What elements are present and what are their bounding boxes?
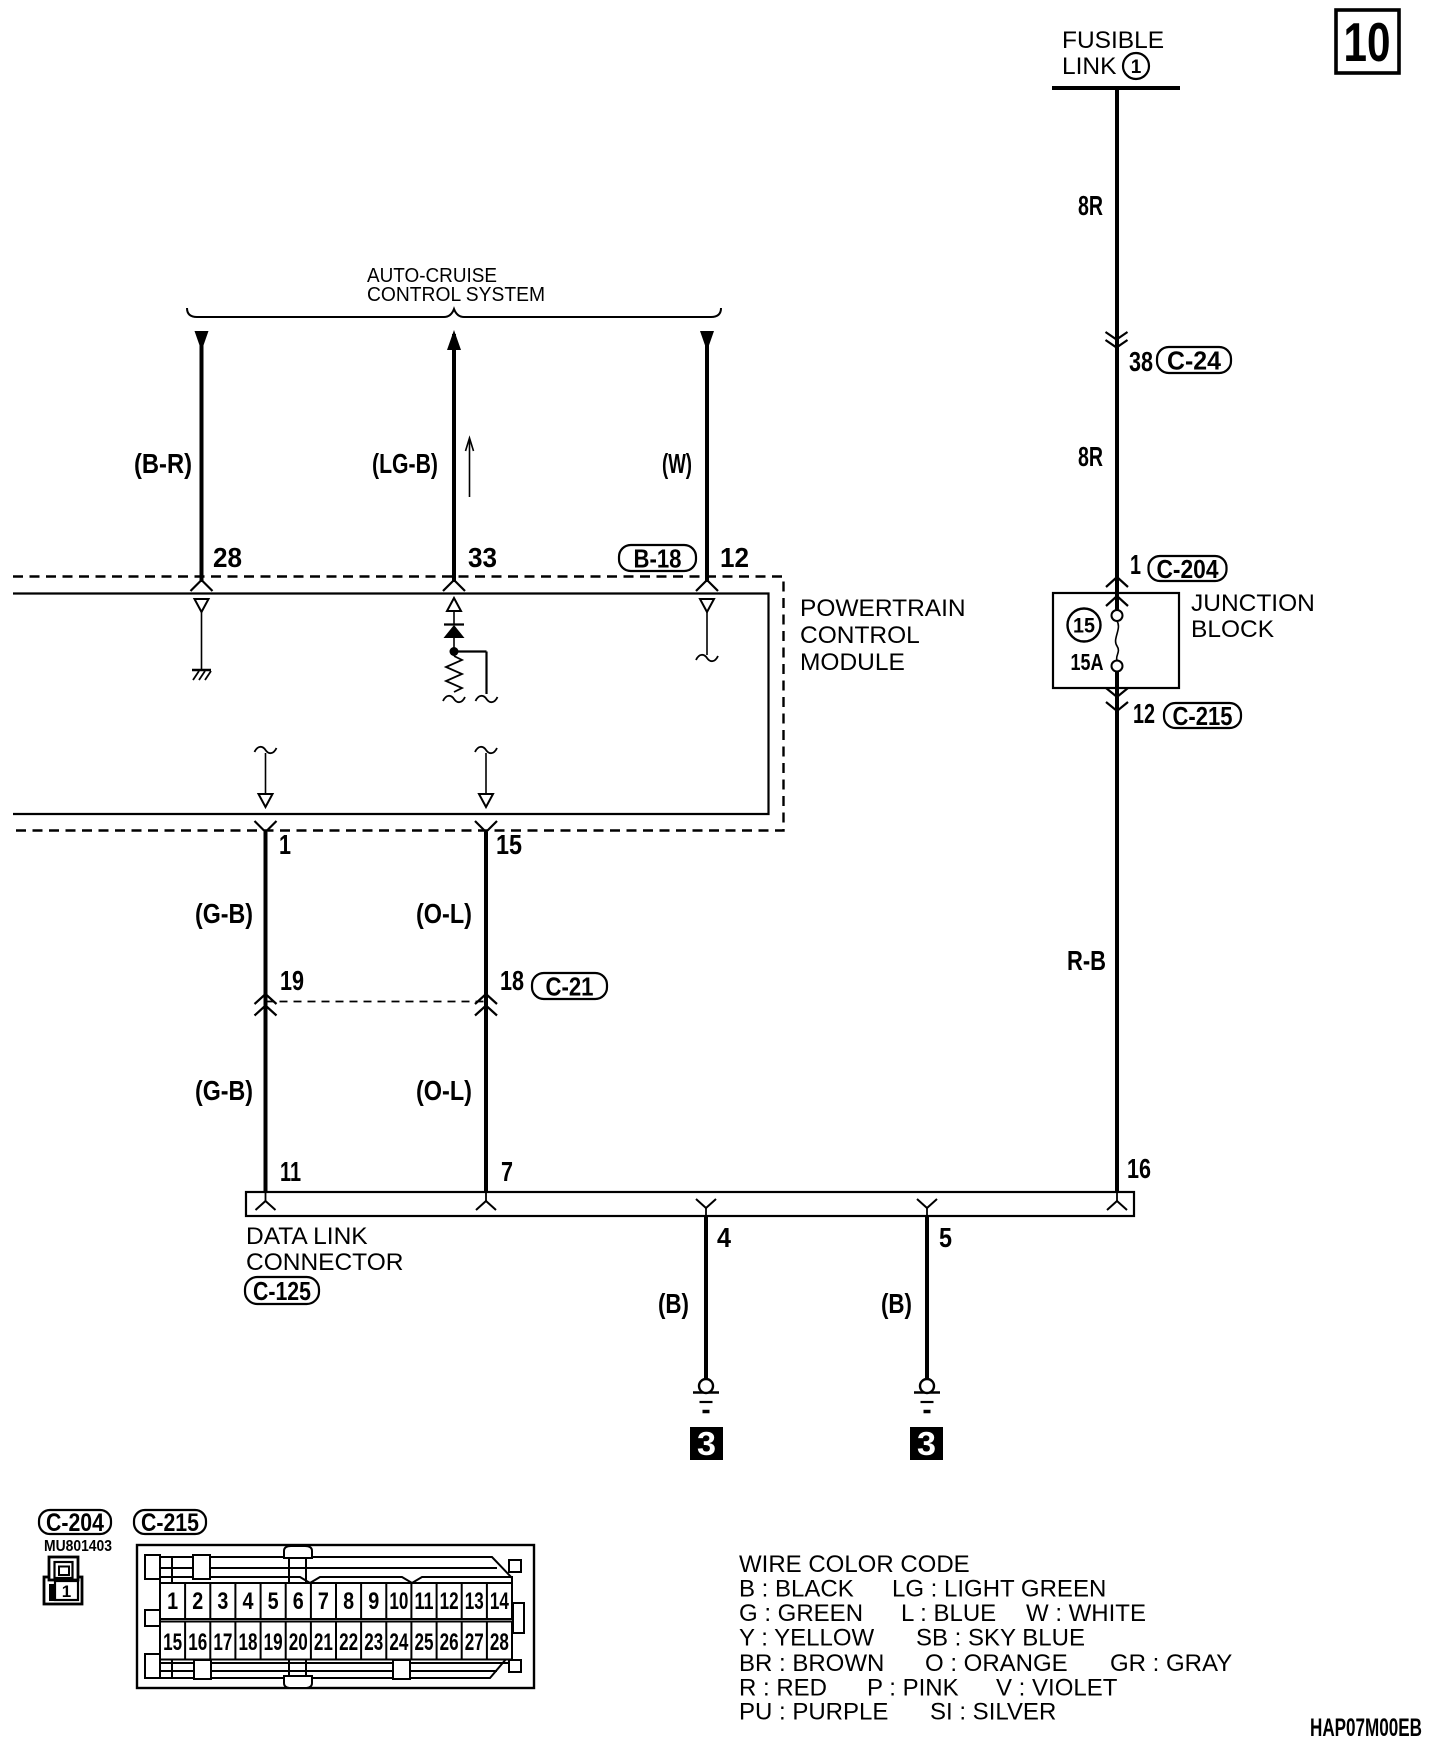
svg-text:28: 28 [213, 542, 242, 573]
svg-text:16: 16 [188, 1629, 207, 1656]
svg-text:V : VIOLET: V : VIOLET [996, 1675, 1118, 1702]
svg-text:38: 38 [1129, 346, 1153, 377]
svg-text:WIRE COLOR CODE: WIRE COLOR CODE [739, 1551, 970, 1578]
svg-text:23: 23 [364, 1629, 383, 1656]
svg-text:POWERTRAIN: POWERTRAIN [800, 595, 966, 622]
svg-text:15: 15 [163, 1629, 182, 1656]
svg-text:BLOCK: BLOCK [1191, 616, 1275, 643]
svg-text:11: 11 [415, 1588, 434, 1615]
svg-text:FUSIBLE: FUSIBLE [1062, 27, 1164, 54]
svg-text:LG : LIGHT GREEN: LG : LIGHT GREEN [892, 1576, 1106, 1603]
svg-text:CONNECTOR: CONNECTOR [246, 1249, 403, 1276]
svg-text:21: 21 [314, 1629, 333, 1656]
svg-text:15A: 15A [1071, 649, 1104, 675]
svg-text:1: 1 [279, 829, 291, 860]
svg-text:4: 4 [243, 1588, 255, 1615]
svg-text:R : RED: R : RED [739, 1675, 827, 1702]
svg-text:12: 12 [440, 1588, 459, 1615]
svg-text:12: 12 [720, 542, 749, 573]
svg-text:14: 14 [490, 1588, 509, 1615]
svg-text:15: 15 [496, 829, 522, 860]
svg-text:18: 18 [239, 1629, 258, 1656]
svg-text:(W): (W) [662, 448, 692, 479]
svg-text:8R: 8R [1078, 190, 1103, 221]
svg-text:G : GREEN: G : GREEN [739, 1600, 863, 1627]
svg-text:18: 18 [500, 965, 524, 996]
svg-text:15: 15 [1073, 615, 1095, 638]
svg-text:C-215: C-215 [141, 1509, 199, 1537]
svg-text:CONTROL: CONTROL [800, 622, 920, 649]
svg-text:16: 16 [1127, 1153, 1151, 1184]
svg-text:(O-L): (O-L) [416, 1075, 472, 1106]
svg-text:1: 1 [1130, 549, 1141, 580]
svg-text:19: 19 [280, 965, 304, 996]
svg-text:10: 10 [1344, 11, 1391, 73]
svg-text:R-B: R-B [1067, 945, 1106, 976]
svg-text:(G-B): (G-B) [195, 898, 253, 929]
svg-text:27: 27 [465, 1629, 484, 1656]
svg-text:(B): (B) [658, 1288, 689, 1319]
svg-text:(O-L): (O-L) [416, 898, 472, 929]
svg-text:BR : BROWN: BR : BROWN [739, 1650, 884, 1677]
svg-text:33: 33 [468, 542, 497, 573]
svg-text:O : ORANGE: O : ORANGE [925, 1650, 1068, 1677]
svg-text:3: 3 [697, 1425, 716, 1462]
svg-text:Y : YELLOW: Y : YELLOW [739, 1625, 875, 1652]
svg-text:28: 28 [490, 1629, 509, 1656]
svg-text:3: 3 [217, 1588, 228, 1615]
svg-text:22: 22 [339, 1629, 358, 1656]
svg-text:8R: 8R [1078, 441, 1103, 472]
svg-text:L : BLUE: L : BLUE [901, 1600, 996, 1627]
svg-text:C-215: C-215 [1173, 701, 1233, 731]
svg-text:W : WHITE: W : WHITE [1026, 1600, 1146, 1627]
svg-text:SB : SKY BLUE: SB : SKY BLUE [916, 1625, 1085, 1652]
svg-text:(LG-B): (LG-B) [372, 448, 438, 479]
svg-text:B : BLACK: B : BLACK [739, 1576, 854, 1603]
svg-text:(G-B): (G-B) [195, 1075, 253, 1106]
svg-text:MU801403: MU801403 [44, 1538, 112, 1555]
svg-text:5: 5 [939, 1222, 952, 1253]
svg-text:24: 24 [389, 1629, 408, 1656]
svg-text:C-125: C-125 [253, 1276, 311, 1306]
svg-text:6: 6 [293, 1588, 304, 1615]
svg-text:19: 19 [264, 1629, 283, 1656]
svg-text:P : PINK: P : PINK [867, 1675, 959, 1702]
svg-text:C-204: C-204 [46, 1509, 104, 1537]
svg-text:8: 8 [343, 1588, 354, 1615]
svg-text:25: 25 [415, 1629, 434, 1656]
svg-text:13: 13 [465, 1588, 484, 1615]
svg-text:3: 3 [917, 1425, 936, 1462]
svg-text:7: 7 [501, 1156, 513, 1187]
svg-text:1: 1 [62, 1582, 71, 1601]
svg-text:1: 1 [167, 1588, 178, 1615]
svg-text:26: 26 [440, 1629, 459, 1656]
svg-text:10: 10 [389, 1588, 408, 1615]
svg-text:2: 2 [192, 1588, 203, 1615]
svg-text:DATA LINK: DATA LINK [246, 1223, 368, 1250]
svg-text:LINK: LINK [1062, 53, 1117, 80]
svg-text:C-204: C-204 [1157, 554, 1219, 584]
svg-text:HAP07M00EB: HAP07M00EB [1310, 1714, 1422, 1742]
svg-text:7: 7 [318, 1588, 329, 1615]
svg-text:9: 9 [368, 1588, 379, 1615]
svg-text:11: 11 [280, 1156, 301, 1187]
svg-text:4: 4 [717, 1222, 731, 1253]
svg-text:CONTROL SYSTEM: CONTROL SYSTEM [367, 284, 545, 306]
svg-text:17: 17 [213, 1629, 232, 1656]
svg-text:20: 20 [289, 1629, 308, 1656]
svg-text:C-24: C-24 [1167, 345, 1222, 375]
svg-text:1: 1 [1131, 57, 1142, 78]
svg-text:(B-R): (B-R) [134, 448, 192, 479]
svg-text:5: 5 [268, 1588, 279, 1615]
svg-text:MODULE: MODULE [800, 649, 905, 676]
svg-text:GR : GRAY: GR : GRAY [1110, 1650, 1232, 1677]
svg-text:PU : PURPLE: PU : PURPLE [739, 1699, 888, 1726]
svg-text:C-21: C-21 [546, 971, 594, 1001]
svg-text:JUNCTION: JUNCTION [1191, 590, 1315, 617]
svg-text:B-18: B-18 [634, 543, 682, 573]
svg-text:SI : SILVER: SI : SILVER [930, 1699, 1056, 1726]
svg-text:(B): (B) [881, 1288, 912, 1319]
svg-text:12: 12 [1133, 698, 1155, 729]
